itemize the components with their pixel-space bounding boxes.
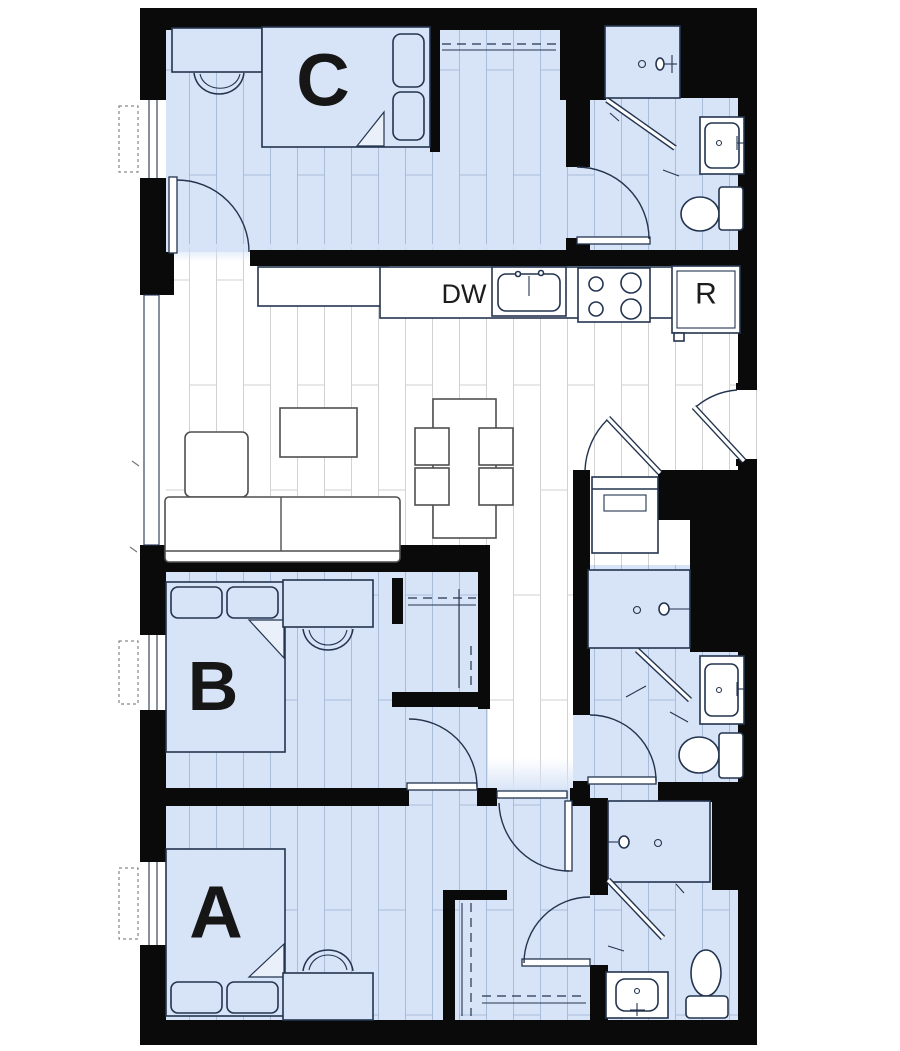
- refrigerator-label: R: [695, 278, 717, 311]
- floor-plan-page: C DW R: [0, 0, 900, 1051]
- window-wall-living: [130, 295, 159, 552]
- window-gap: [140, 100, 166, 178]
- wall-laundry-right-block: [658, 470, 750, 520]
- wall-closet-c: [430, 25, 440, 152]
- pillow: [171, 587, 222, 618]
- window-gap: [140, 635, 166, 710]
- wall-bath1-left-block: [560, 10, 606, 100]
- door-leaf: [577, 237, 650, 244]
- floor-fade-corridor: [488, 758, 573, 792]
- wall-break-mark: [132, 461, 139, 466]
- pillow: [393, 34, 424, 87]
- door-leaf: [407, 783, 477, 790]
- wall-corridor-closet: [478, 562, 490, 709]
- burner: [621, 299, 641, 319]
- laundry-closet: [592, 477, 658, 553]
- burner: [621, 273, 641, 293]
- glazing-wall: [144, 295, 159, 545]
- dining-chair: [479, 428, 513, 465]
- desk: [172, 28, 262, 72]
- dining-chair: [479, 468, 513, 505]
- wall-band-stub: [477, 788, 497, 806]
- wall-bath3-left-upper: [590, 798, 608, 895]
- door-leaf: [565, 801, 572, 871]
- toilet-tank: [719, 733, 743, 778]
- dining-chair: [415, 428, 449, 465]
- wall-break-mark: [130, 547, 137, 552]
- wall-b-closet-stub: [392, 578, 403, 624]
- dishwasher-label: DW: [442, 279, 487, 309]
- sink-knob: [539, 271, 544, 276]
- dining-chair: [415, 468, 449, 505]
- wall-laundry-left: [573, 470, 590, 565]
- shower-head: [659, 603, 669, 615]
- window-bedroom-b: [119, 635, 166, 710]
- wall-a-closet: [443, 890, 455, 1020]
- burner: [589, 302, 603, 316]
- wall-left-1: [140, 8, 166, 100]
- wall-left-jog: [140, 252, 174, 295]
- shower-head: [656, 58, 664, 70]
- kitchen-cabinet: [258, 267, 388, 306]
- window-well: [119, 868, 138, 939]
- wall-bath1-left-strip: [566, 100, 590, 167]
- door-leaf: [522, 959, 590, 966]
- window-gap: [140, 862, 166, 945]
- wall-band-small: [570, 788, 590, 806]
- wall-bath2-shower-block: [690, 520, 757, 652]
- wall-bottom: [140, 1020, 757, 1045]
- door-leaf: [169, 177, 177, 253]
- window-well: [119, 641, 138, 704]
- toilet-tank: [719, 187, 743, 230]
- sofa-chaise: [185, 432, 248, 497]
- room-label-a: A: [189, 871, 242, 954]
- desk: [283, 580, 373, 627]
- window-well: [119, 106, 138, 172]
- door-threshold: [497, 791, 567, 798]
- wall-bath1-right-block: [680, 8, 757, 98]
- wall-left-4: [140, 710, 166, 862]
- toilet-bowl: [691, 950, 721, 996]
- window-bedroom-a: [119, 862, 166, 945]
- pillow: [171, 982, 222, 1013]
- sink-knob: [516, 272, 521, 277]
- shower-head: [619, 836, 629, 848]
- window-bedroom-c: [119, 100, 166, 178]
- room-label-c: C: [296, 39, 349, 122]
- pillow: [227, 982, 278, 1013]
- desk: [283, 973, 373, 1020]
- toilet-bowl: [679, 737, 719, 773]
- wall-b-closet-bar: [392, 692, 478, 707]
- shower: [605, 26, 680, 98]
- wall-entry-sill-top: [736, 383, 757, 390]
- refrigerator-handle: [674, 333, 684, 341]
- burner: [589, 277, 603, 291]
- wall-left-5: [140, 945, 166, 1045]
- wall-b-bottom-band: [140, 788, 409, 806]
- toilet-bowl: [681, 197, 719, 231]
- planks: [488, 470, 573, 792]
- toilet-tank: [686, 996, 728, 1018]
- wall-a-closet-bar: [443, 890, 507, 900]
- sofa: [165, 497, 400, 562]
- coffee-table: [280, 408, 357, 457]
- wall-kitchen-band: [250, 250, 740, 266]
- room-label-b: B: [188, 647, 239, 725]
- vanity-sink: [705, 123, 739, 168]
- door-leaf: [588, 777, 656, 784]
- pillow: [227, 587, 278, 618]
- pillow: [393, 92, 424, 140]
- wall-bath3-right-block: [712, 798, 757, 890]
- floor-plan: C DW R: [0, 0, 900, 1051]
